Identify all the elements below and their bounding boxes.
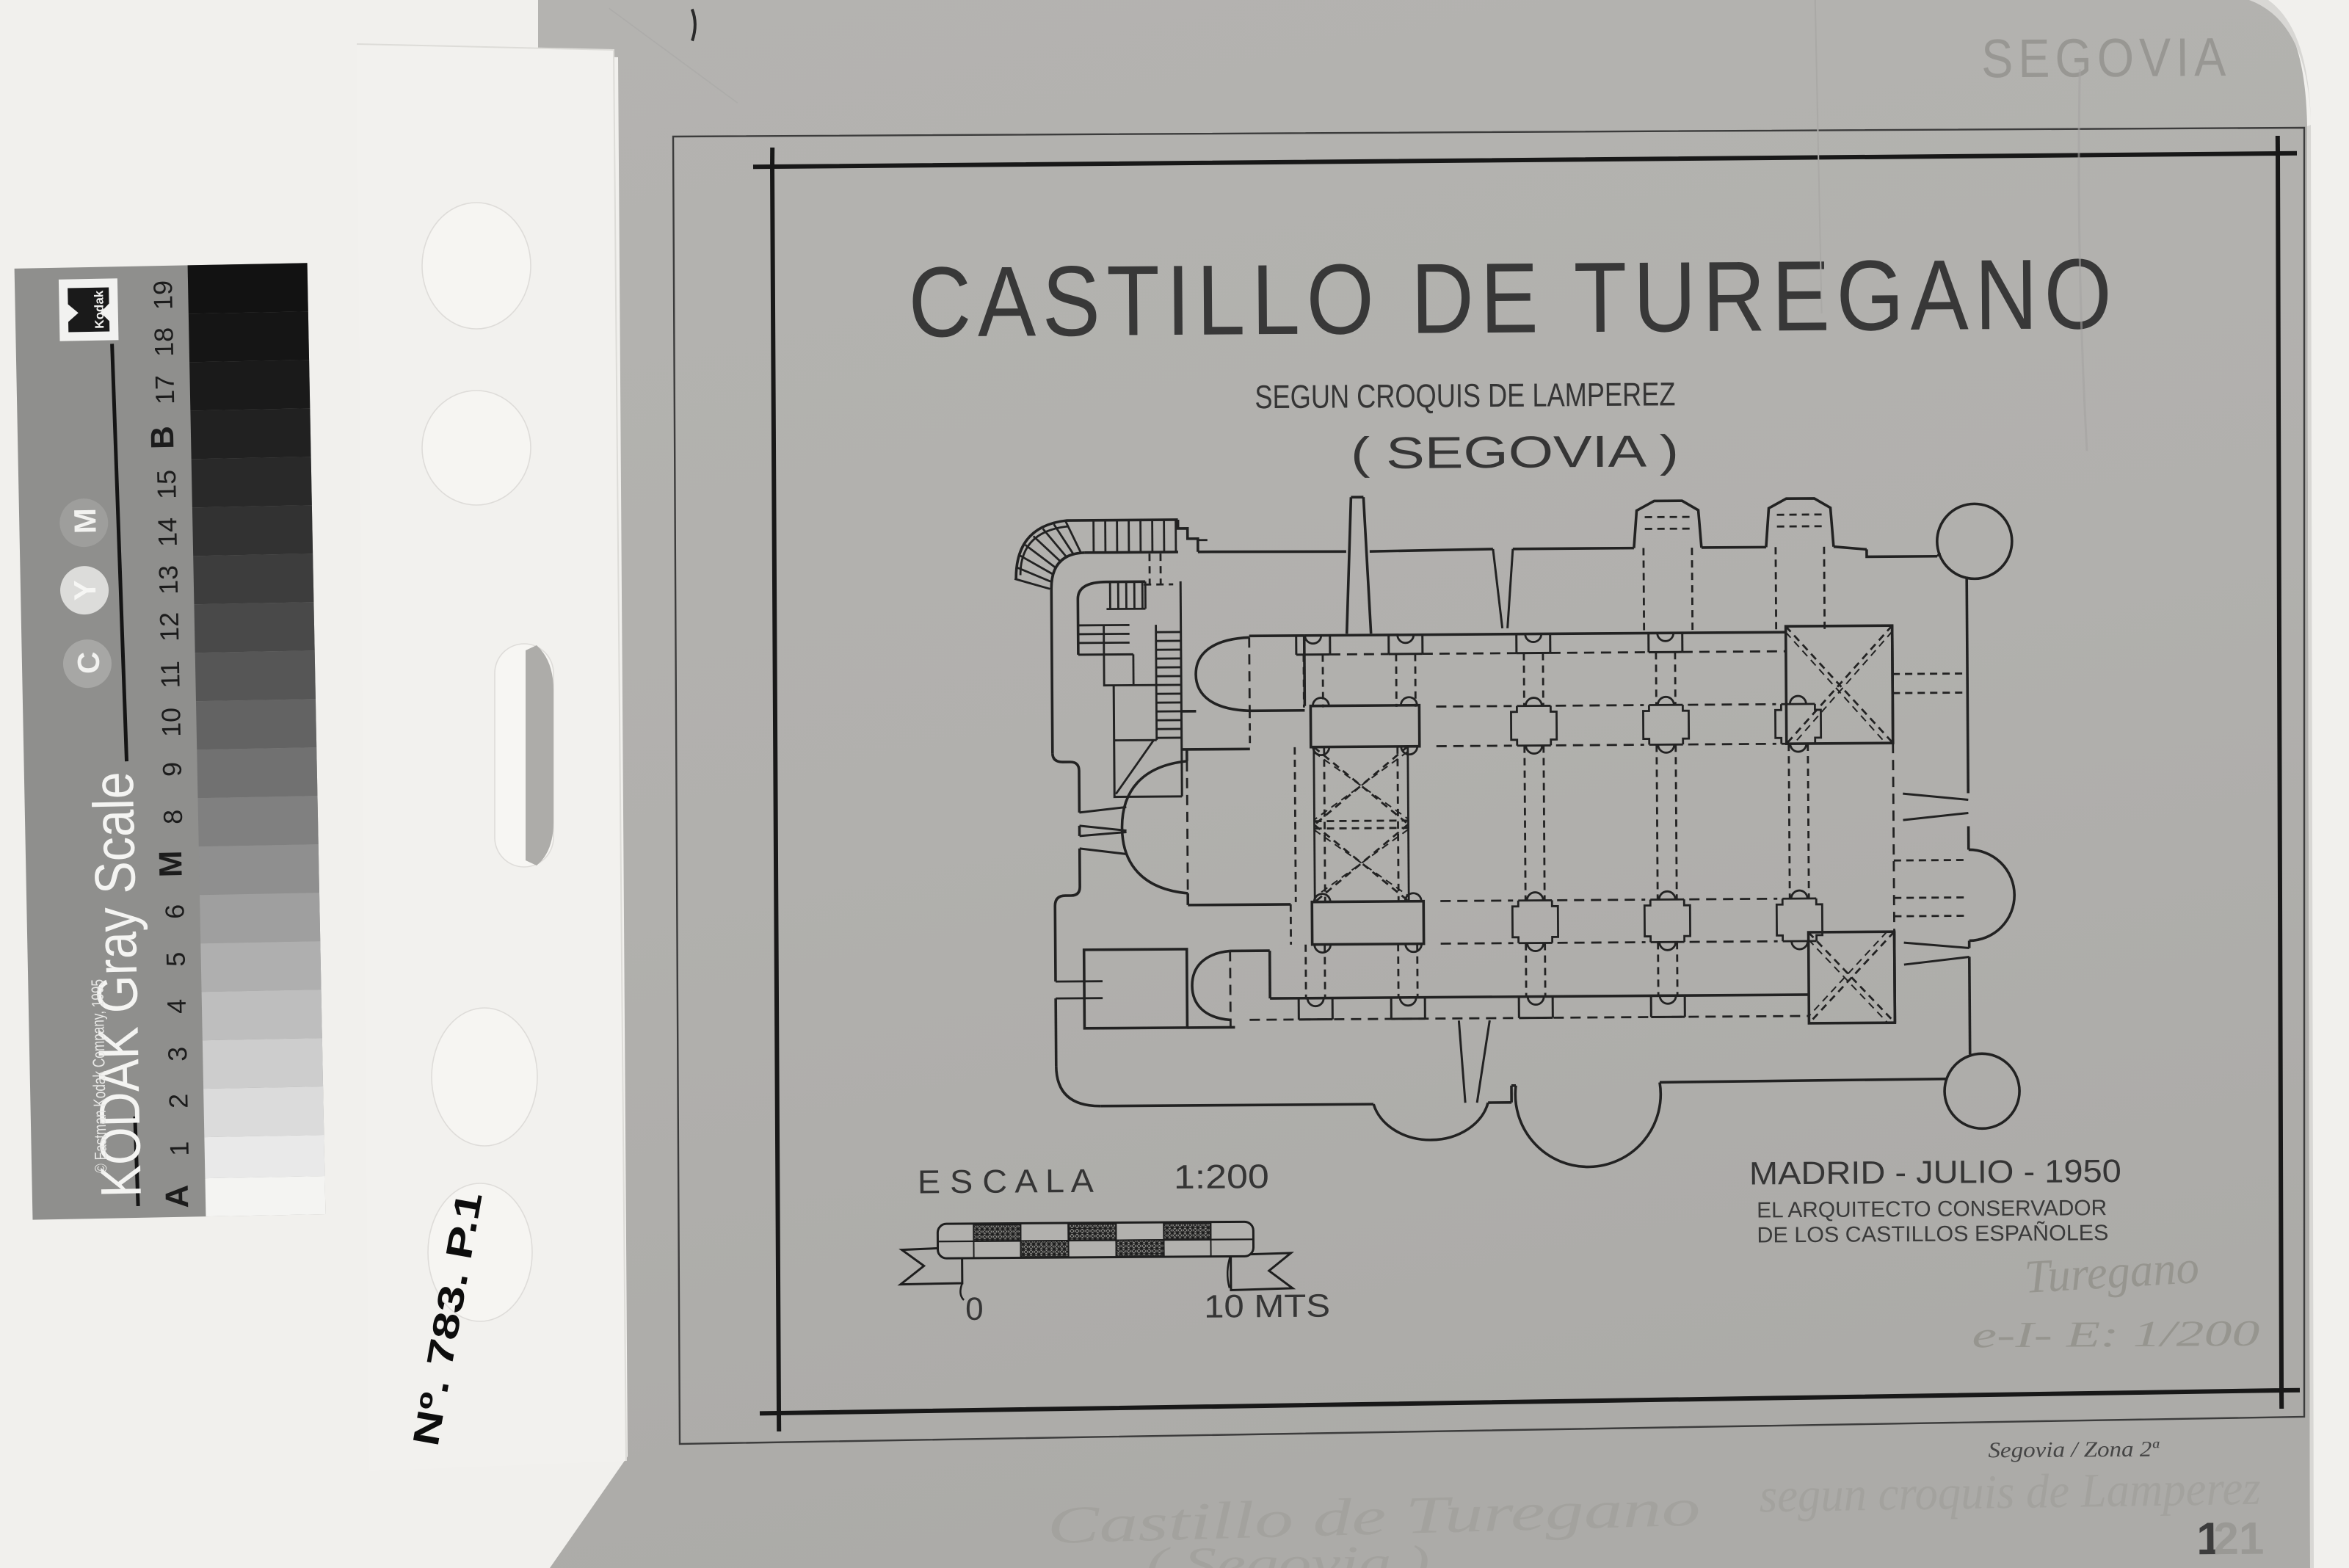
- svg-text:DE LOS CASTILLOS ESPAÑOLES: DE LOS CASTILLOS ESPAÑOLES: [1757, 1220, 2108, 1247]
- svg-text:2: 2: [163, 1093, 193, 1108]
- svg-text:17: 17: [149, 375, 180, 405]
- svg-text:EL ARQUITECTO CONSERVADOR: EL ARQUITECTO CONSERVADOR: [1757, 1196, 2107, 1222]
- svg-text:Segovia / Zona 2ª: Segovia / Zona 2ª: [1988, 1437, 2160, 1463]
- svg-text:18: 18: [148, 327, 179, 357]
- svg-text:© Eastman Kodak Company, 1995: © Eastman Kodak Company, 1995: [87, 979, 110, 1173]
- svg-text:14: 14: [152, 518, 183, 548]
- svg-text:( Segovia ): ( Segovia ): [1145, 1536, 1430, 1568]
- svg-text:e-I- E: 1/200: e-I- E: 1/200: [1972, 1313, 2259, 1356]
- svg-text:11: 11: [155, 661, 186, 689]
- svg-text:SEGUN CROQUIS DE LAMPEREZ: SEGUN CROQUIS DE LAMPEREZ: [1255, 375, 1675, 415]
- svg-text:12: 12: [154, 612, 185, 642]
- svg-text:MADRID - JULIO - 1950: MADRID - JULIO - 1950: [1749, 1153, 2121, 1192]
- svg-text:4: 4: [161, 998, 192, 1014]
- svg-text:A: A: [159, 1185, 196, 1209]
- svg-text:SEGOVIA: SEGOVIA: [1981, 26, 2232, 89]
- svg-text:3: 3: [162, 1046, 192, 1061]
- svg-text:C: C: [71, 651, 106, 674]
- svg-text:10: 10: [156, 708, 186, 738]
- svg-text:1: 1: [164, 1141, 194, 1156]
- svg-text:15: 15: [151, 470, 182, 500]
- svg-text:10 MTS: 10 MTS: [1204, 1288, 1330, 1325]
- svg-text:13: 13: [153, 565, 184, 595]
- svg-text:1:200: 1:200: [1174, 1157, 1269, 1196]
- svg-text:segun croquis de Lamperez: segun croquis de Lamperez: [1759, 1462, 2261, 1523]
- svg-text:8: 8: [158, 810, 188, 825]
- svg-text:Kodak: Kodak: [92, 290, 106, 329]
- svg-text:M: M: [153, 850, 189, 878]
- svg-text:B: B: [145, 426, 181, 450]
- svg-text:( SEGOVIA ): ( SEGOVIA ): [1351, 426, 1679, 478]
- svg-text:Y: Y: [68, 580, 103, 601]
- svg-text:0: 0: [965, 1291, 984, 1327]
- svg-text:E S C A L A: E S C A L A: [918, 1162, 1094, 1201]
- svg-text:5: 5: [161, 951, 191, 967]
- svg-text:21: 21: [2213, 1514, 2264, 1564]
- svg-text:CASTILLO DE TUREGANO: CASTILLO DE TUREGANO: [908, 238, 2119, 358]
- svg-text:6: 6: [159, 904, 189, 919]
- svg-text:M: M: [68, 508, 103, 534]
- svg-text:Turegano: Turegano: [2023, 1241, 2201, 1303]
- svg-text:9: 9: [157, 762, 187, 777]
- svg-text:19: 19: [148, 280, 178, 311]
